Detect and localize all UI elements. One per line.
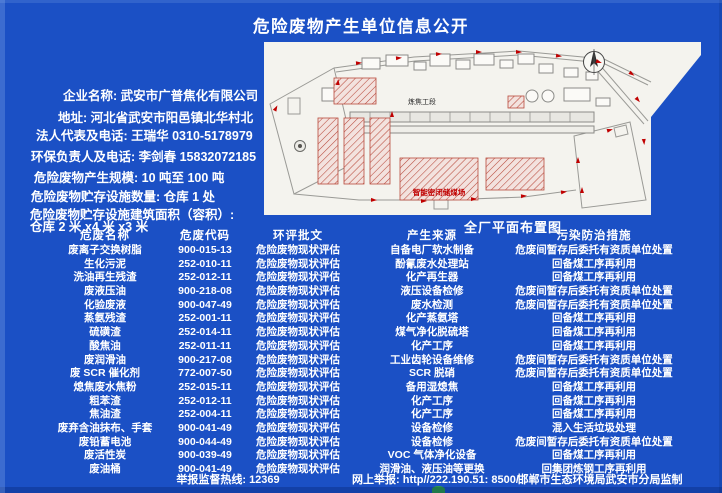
table-cell: 化产再生器	[355, 271, 509, 285]
table-cell: 危险废物现状评估	[240, 299, 356, 313]
table-cell: 危险废物现状评估	[240, 354, 356, 368]
table-cell: 危险废物现状评估	[240, 422, 356, 436]
table-cell: 化产工序	[355, 408, 509, 422]
table-cell: 危险废物现状评估	[240, 449, 356, 463]
table-cell: 危险废物现状评估	[240, 258, 356, 272]
table-cell: 工业齿轮设备维修	[355, 354, 509, 368]
table-cell: 危废间暂存后委托有资质单位处置	[492, 285, 696, 299]
table-cell: 废水检测	[355, 299, 509, 313]
table-cell: 危险废物现状评估	[240, 271, 356, 285]
column-eia-approval: 环评批文 危险废物现状评估危险废物现状评估危险废物现状评估危险废物现状评估危险废…	[240, 229, 356, 477]
company-name-line: 企业名称: 武安市广普焦化有限公司	[63, 85, 258, 104]
table-cell: 危废间暂存后委托有资质单位处置	[492, 367, 696, 381]
pond-icon	[295, 141, 306, 152]
report-hotline: 举报监督热线: 12369	[152, 471, 304, 487]
table-cell: 危险废物现状评估	[240, 285, 356, 299]
table-cell: 危废间暂存后委托有资质单位处置	[492, 244, 696, 258]
table-cell: 回备煤工序再利用	[492, 381, 696, 395]
table-cell: 回备煤工序再利用	[492, 312, 696, 326]
table-cell: 危废间暂存后委托有资质单位处置	[492, 299, 696, 313]
table-cell: 回备煤工序再利用	[492, 258, 696, 272]
table-cell: 回备煤工序再利用	[492, 271, 696, 285]
table-cell: 回备煤工序再利用	[492, 326, 696, 340]
column-header: 产生来源	[355, 229, 509, 244]
column-header: 污染防治措施	[492, 229, 696, 244]
table-cell: 危险废物现状评估	[240, 381, 356, 395]
table-cell: 回备煤工序再利用	[492, 408, 696, 422]
table-cell: 危险废物现状评估	[240, 312, 356, 326]
green-mark	[432, 486, 445, 493]
table-cell: 回备煤工序再利用	[492, 449, 696, 463]
page-title: 危险废物产生单位信息公开	[0, 13, 722, 37]
column-source: 产生来源 自备电厂软水制备酚氰废水处理站化产再生器液压设备检修废水检测化产蒸氨塔…	[355, 229, 509, 477]
table-cell: 自备电厂软水制备	[355, 244, 509, 258]
table-cell: 危废间暂存后委托有资质单位处置	[492, 354, 696, 368]
env-officer-line: 环保负责人及电话: 李剑春 15832072185	[31, 146, 256, 165]
table-cell: 危废间暂存后委托有资质单位处置	[492, 436, 696, 450]
table-cell: 危险废物现状评估	[240, 395, 356, 409]
table-cell: 化产蒸氨塔	[355, 312, 509, 326]
storage-count-line: 危险废物贮存设施数量: 仓库 1 处	[31, 186, 215, 205]
table-cell: 危险废物现状评估	[240, 367, 356, 381]
table-cell: 酚氰废水处理站	[355, 258, 509, 272]
address-line: 地址: 河北省武安市阳邑镇北华村北	[58, 107, 253, 126]
table-cell: 回备煤工序再利用	[492, 340, 696, 354]
plant-layout-map: 炼焦工段 智能密闭储煤场	[264, 42, 701, 215]
table-cell: 设备检修	[355, 436, 509, 450]
table-cell: 危险废物现状评估	[240, 340, 356, 354]
table-cell: VOC 气体净化设备	[355, 449, 509, 463]
table-cell: 危险废物现状评估	[240, 436, 356, 450]
table-cell: 危险废物现状评估	[240, 408, 356, 422]
waste-scale-line: 危险废物产生规模: 10 吨至 100 吨	[34, 167, 224, 186]
table-cell: 危险废物现状评估	[240, 244, 356, 258]
table-cell: 化产工序	[355, 395, 509, 409]
map-label-coking-section: 炼焦工段	[408, 97, 436, 106]
map-label-coal-shed: 智能密闭储煤场	[413, 187, 466, 197]
table-cell: 设备检修	[355, 422, 509, 436]
table-cell: 回备煤工序再利用	[492, 395, 696, 409]
column-prevention-measure: 污染防治措施 危废间暂存后委托有资质单位处置回备煤工序再利用回备煤工序再利用危废…	[492, 229, 696, 477]
column-header: 环评批文	[240, 229, 356, 244]
legal-rep-line: 法人代表及电话: 王瑞华 0310-5178979	[36, 125, 253, 144]
table-cell: SCR 脱硝	[355, 367, 509, 381]
online-report-url: 网上举报: http//222.190.51: 8500/	[352, 471, 504, 487]
table-cell: 混入生活垃圾处理	[492, 422, 696, 436]
table-cell: 煤气净化脱硫塔	[355, 326, 509, 340]
plant-layout-drawing: 炼焦工段 智能密闭储煤场	[264, 42, 701, 215]
hazardous-waste-info-board: 危险废物产生单位信息公开	[0, 0, 722, 493]
table-cell: 液压设备检修	[355, 285, 509, 299]
table-cell: 备用湿熄焦	[355, 381, 509, 395]
table-cell: 化产工序	[355, 340, 509, 354]
producer-credit: 邯郸市生态环境局武安市分局监制	[498, 471, 702, 487]
table-cell: 危险废物现状评估	[240, 326, 356, 340]
